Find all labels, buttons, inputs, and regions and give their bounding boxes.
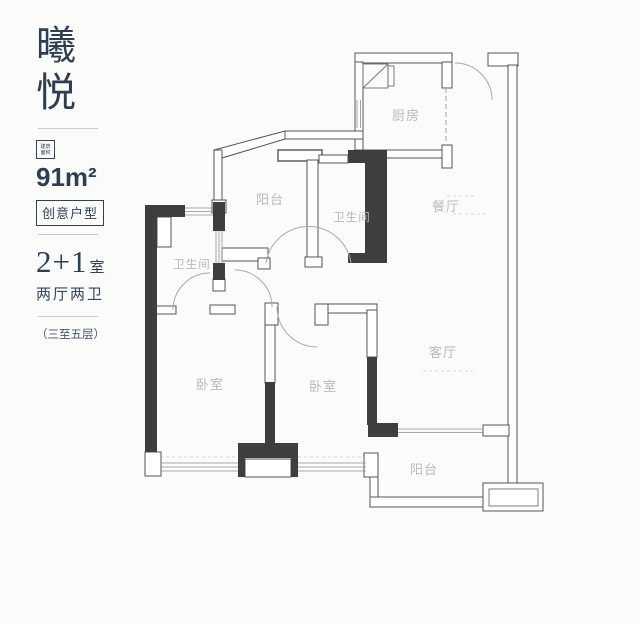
badge-text-line-2: 面积 [40,150,50,156]
layout-tag: 创意户型 [36,200,104,226]
built-area-badge: 建筑 面积 [36,140,55,159]
room-label-bedroom-left: 卧室 [196,377,224,392]
divider [38,234,98,235]
info-sidebar: 曦 悦 建筑 面积 91m² 创意户型 2+1室 两厅两卫 （三至五层） [36,22,140,342]
unit-area: 91m² [36,162,140,193]
thin-walls [145,53,543,511]
room-label-kitchen: 厨房 [392,108,420,123]
room-label-balcony-bottom: 阳台 [410,462,438,477]
room-label-bedroom-middle: 卧室 [309,379,337,394]
room-count-number: 2+1 [36,244,87,279]
room-count-unit: 室 [89,259,104,276]
room-label-living: 客厅 [429,345,457,360]
room-label-bath-middle: 卫生间 [333,210,371,224]
room-count: 2+1室 [36,244,140,280]
project-title-char-2: 悦 [36,69,140,116]
halls-baths: 两厅两卫 [36,283,140,304]
divider [38,316,98,317]
room-label-balcony-top: 阳台 [256,192,284,207]
divider [38,128,98,129]
project-title-char-1: 曦 [36,22,140,69]
floor-range: （三至五层） [36,326,140,342]
room-label-bath-left: 卫生间 [173,257,211,271]
room-label-dining: 餐厅 [432,199,460,214]
project-title: 曦 悦 [36,22,140,116]
